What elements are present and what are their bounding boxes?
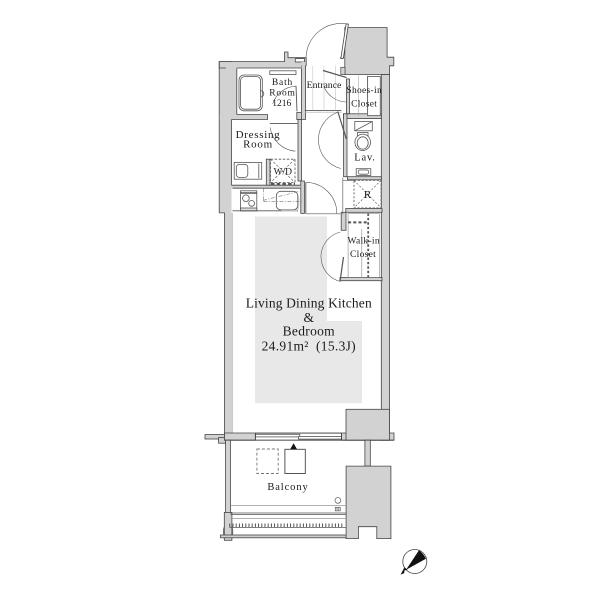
svg-text:W/D: W/D bbox=[274, 167, 293, 177]
svg-text:Balcony: Balcony bbox=[267, 482, 308, 493]
svg-text:Entrance: Entrance bbox=[307, 80, 342, 91]
svg-text:R: R bbox=[364, 189, 372, 201]
svg-text:24.91m² (15.3J): 24.91m² (15.3J) bbox=[262, 339, 356, 354]
svg-text:Bedroom: Bedroom bbox=[283, 324, 336, 339]
svg-text:Living Dining Kitchen: Living Dining Kitchen bbox=[246, 296, 372, 311]
svg-text:Bath: Bath bbox=[272, 78, 293, 88]
svg-text:Lav.: Lav. bbox=[354, 153, 375, 164]
svg-text:Shoes-in: Shoes-in bbox=[346, 86, 382, 96]
svg-text:Closet: Closet bbox=[351, 100, 377, 110]
svg-text:Closet: Closet bbox=[350, 250, 376, 260]
svg-text:Walk-in: Walk-in bbox=[347, 236, 379, 246]
svg-text:1216: 1216 bbox=[272, 99, 291, 109]
svg-text:Room: Room bbox=[269, 89, 295, 99]
svg-text:Room: Room bbox=[243, 139, 273, 151]
